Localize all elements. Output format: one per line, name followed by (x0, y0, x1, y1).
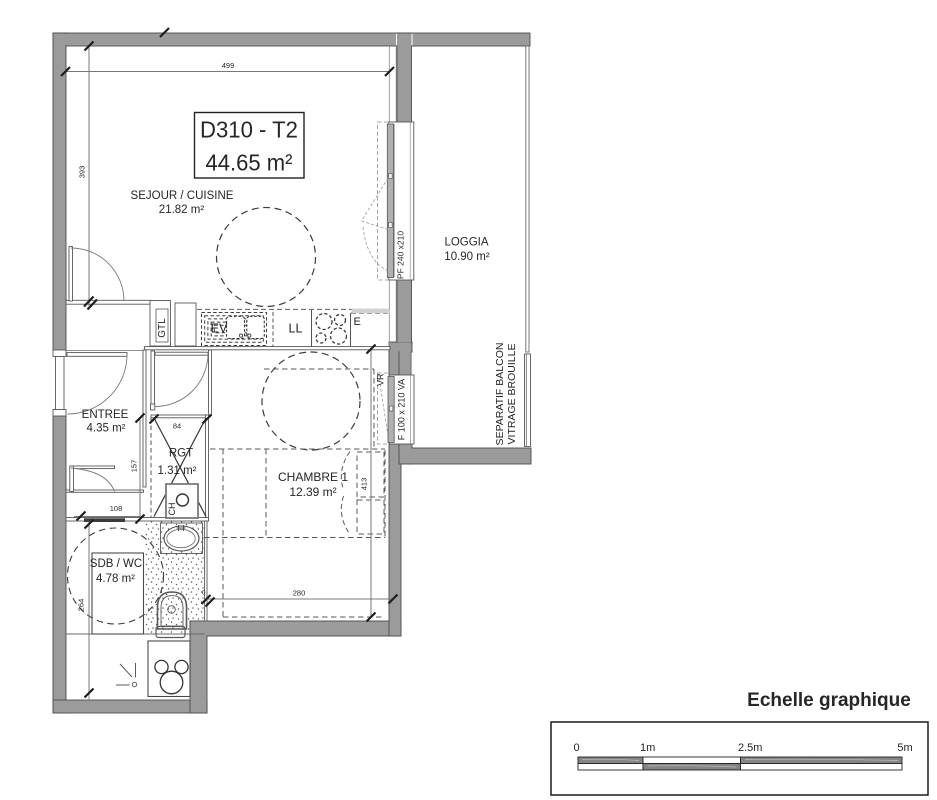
svg-text:CHAMBRE 1: CHAMBRE 1 (278, 470, 348, 484)
svg-text:12.39 m²: 12.39 m² (289, 485, 336, 499)
svg-text:393: 393 (78, 166, 87, 179)
svg-text:108: 108 (110, 504, 123, 513)
svg-text:4.35 m²: 4.35 m² (87, 423, 126, 435)
svg-text:10.90 m²: 10.90 m² (444, 251, 490, 263)
svg-text:413: 413 (360, 478, 369, 491)
svg-text:VR: VR (376, 373, 386, 386)
svg-text:RGT: RGT (169, 448, 193, 460)
svg-text:D310 - T2: D310 - T2 (200, 117, 298, 143)
svg-text:264: 264 (77, 599, 86, 612)
svg-text:5m: 5m (897, 742, 912, 754)
svg-text:Echelle graphique: Echelle graphique (747, 690, 911, 711)
svg-text:21.82 m²: 21.82 m² (159, 204, 205, 216)
svg-text:F 100 x 210 VA: F 100 x 210 VA (397, 379, 407, 440)
svg-text:157: 157 (130, 460, 139, 473)
svg-text:LL: LL (289, 322, 303, 336)
svg-text:CH: CH (167, 503, 177, 516)
svg-text:2.5m: 2.5m (738, 742, 762, 754)
svg-text:44.65 m²: 44.65 m² (206, 150, 293, 176)
svg-text:280: 280 (293, 589, 306, 598)
svg-text:GTL: GTL (157, 318, 168, 338)
svg-text:499: 499 (222, 61, 235, 70)
svg-text:PF 240 x210: PF 240 x210 (396, 231, 406, 279)
svg-text:SEJOUR / CUISINE: SEJOUR / CUISINE (131, 190, 234, 202)
svg-text:1.31 m²: 1.31 m² (158, 465, 197, 477)
svg-text:VITRAGE BROUILLE: VITRAGE BROUILLE (506, 344, 518, 445)
svg-text:0: 0 (573, 742, 579, 754)
svg-text:0: 0 (202, 590, 206, 597)
svg-text:EV: EV (211, 322, 228, 336)
svg-text:ENTREE: ENTREE (82, 409, 129, 421)
svg-text:1m: 1m (640, 742, 655, 754)
svg-text:LOGGIA: LOGGIA (444, 237, 488, 249)
svg-text:E: E (354, 316, 361, 328)
svg-text:SDB / WC: SDB / WC (90, 558, 142, 570)
svg-text:SEPARATIF BALCON: SEPARATIF BALCON (494, 343, 506, 446)
svg-text:4.78 m²: 4.78 m² (96, 573, 135, 585)
svg-text:84: 84 (173, 422, 181, 431)
